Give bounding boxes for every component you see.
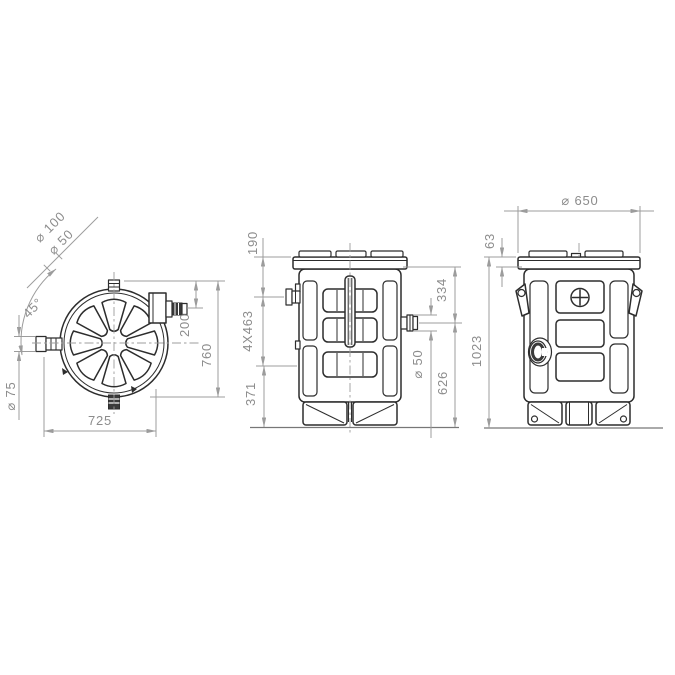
dim-base-height: 371 (243, 382, 258, 406)
center-panels (556, 281, 604, 381)
front-view: 190 4X463 371 334 626 ⌀ 50 (240, 231, 462, 438)
side-panel (303, 346, 317, 396)
inlet-stub (286, 289, 300, 305)
side-panel (383, 346, 397, 396)
dim-overall-depth: 760 (199, 343, 214, 367)
left-outlet-stub (36, 337, 62, 352)
technical-drawing: ⌀ 100 ⌀ 50 45° ⌀ 75 725 200 760 (0, 0, 675, 675)
side-view-tank (484, 243, 663, 428)
front-view-tank (250, 243, 459, 433)
feet (528, 402, 630, 425)
dim-rib-spacing: 4X463 (240, 310, 255, 352)
dim-inlet-angle: 45° (20, 295, 46, 321)
side-view: ⌀ 650 63 1023 (469, 193, 663, 428)
dim-overall-width: 725 (88, 413, 112, 428)
dim-outlet-dia: ⌀ 50 (410, 349, 425, 378)
top-view-tank (32, 272, 200, 414)
dim-body-dia: ⌀ 650 (561, 193, 598, 208)
dim-inlet-height: 190 (245, 231, 260, 255)
dim-cover-height: 63 (482, 233, 497, 249)
side-port (529, 338, 552, 366)
dim-outlet-offset: 200 (177, 313, 192, 337)
side-panel (530, 281, 548, 393)
drawing-page: ⌀ 100 ⌀ 50 45° ⌀ 75 725 200 760 (0, 0, 675, 675)
dim-outlet-height: 626 (435, 371, 450, 395)
top-view: ⌀ 100 ⌀ 50 45° ⌀ 75 725 200 760 (3, 208, 225, 437)
side-panel (383, 281, 397, 340)
dim-outlet-offset: 334 (434, 278, 449, 302)
dim-side-outlet-dia: ⌀ 75 (3, 381, 18, 410)
side-panel (610, 281, 628, 338)
outlet-stub (401, 315, 418, 331)
side-panel (303, 281, 317, 340)
side-panel (610, 344, 628, 393)
lid (518, 251, 640, 269)
dim-overall-height: 1023 (469, 335, 484, 367)
